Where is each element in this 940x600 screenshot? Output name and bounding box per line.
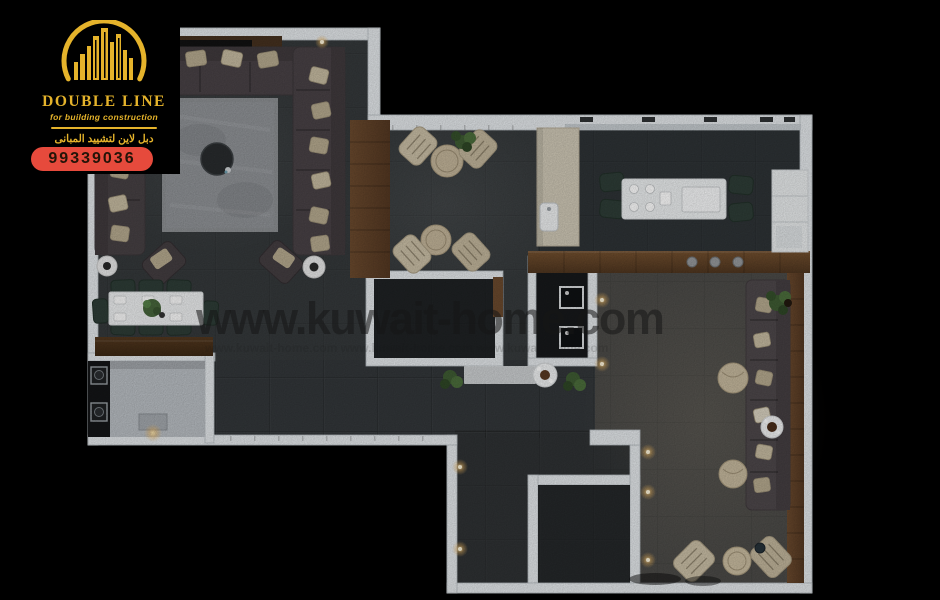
phone-number: 99339036 xyxy=(31,147,153,171)
divider xyxy=(51,127,157,129)
floorplan-screenshot: www.kuwait-home.com www.kuwait-home.com … xyxy=(0,0,940,600)
company-tagline: for building construction xyxy=(28,112,180,122)
buildings-skyline-icon xyxy=(52,20,156,92)
company-name: DOUBLE LINE xyxy=(28,93,180,111)
company-logo: DOUBLE LINE for building construction دب… xyxy=(28,4,180,174)
phone-badge: 99339036 xyxy=(31,147,153,171)
company-name-arabic: دبل لاين لتشييد المبانى xyxy=(28,133,180,145)
texture-grain xyxy=(80,20,820,600)
